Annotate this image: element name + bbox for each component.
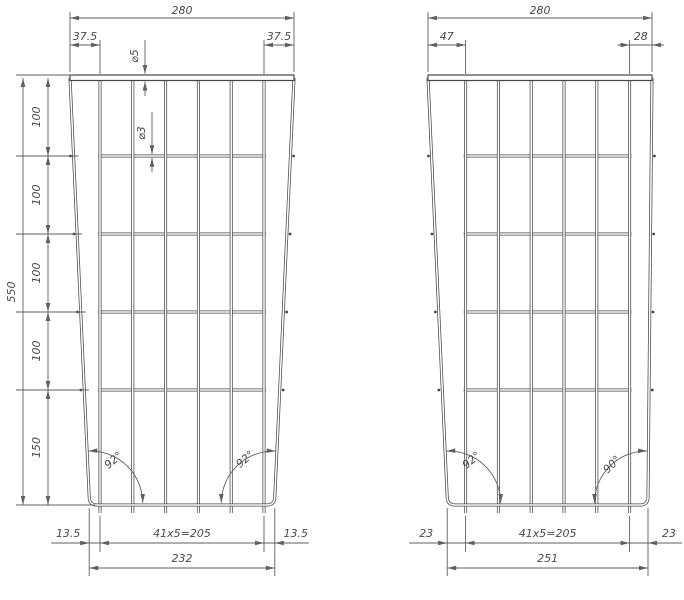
dimension-arrowhead <box>652 43 661 48</box>
dim-row-spacing-label: 100 <box>30 263 43 284</box>
wire-end-dot <box>434 311 437 314</box>
dim-row-spacing-label: 100 <box>30 107 43 128</box>
dimension-arrowhead <box>267 448 276 453</box>
dimension-arrowhead <box>457 43 466 48</box>
dimension-arrowhead <box>46 225 51 234</box>
frame-wire <box>70 78 294 505</box>
dimension-arrowhead <box>446 448 455 453</box>
dimension-arrowhead <box>46 156 51 165</box>
dimension-arrowhead <box>70 43 79 48</box>
dim-total-height-label: 550 <box>5 282 18 303</box>
dimension-arrowhead <box>70 16 79 21</box>
dimension-arrowhead <box>46 496 51 505</box>
dim-bottom-offset-left-label: 13.5 <box>56 527 81 540</box>
dimension-arrowhead <box>639 566 648 571</box>
wire-end-dot <box>437 389 440 392</box>
technical-drawing: 28037.537.513.541x5=20513.523292°92°5501… <box>0 0 684 600</box>
dim-bottom-pitch-label: 41x5=205 <box>153 527 211 540</box>
dimension-arrowhead <box>46 234 51 243</box>
frame-wire-core <box>428 78 652 505</box>
dim-row-spacing-label: 100 <box>30 185 43 206</box>
dimension-arrowhead <box>21 496 26 505</box>
dimension-arrowhead <box>466 541 475 546</box>
dimension-arrowhead <box>255 541 264 546</box>
dimension-arrowhead <box>150 158 155 167</box>
dimension-arrowhead <box>621 43 630 48</box>
frame-wire-core <box>70 78 294 505</box>
angle-arc-right <box>595 451 648 503</box>
dim-row-spacing-label: 150 <box>30 437 43 458</box>
dimension-arrowhead <box>46 381 51 390</box>
dim-bottom-width-label: 251 <box>537 552 558 565</box>
dimension-arrowhead <box>89 566 98 571</box>
dimension-arrowhead <box>285 16 294 21</box>
top-bar <box>428 75 652 81</box>
frame-wire <box>428 78 652 505</box>
wire-end-dot <box>427 155 430 158</box>
dimension-arrowhead <box>46 390 51 399</box>
dimension-arrowhead <box>80 541 89 546</box>
dim-top-offset-left-label: 47 <box>440 30 454 43</box>
wire-end-dot <box>289 233 292 236</box>
dimension-arrowhead <box>438 541 447 546</box>
wire-panel-drawing: 28037.537.513.541x5=20513.523292°92°5501… <box>0 0 684 600</box>
wire-end-dot <box>285 311 288 314</box>
dim-top-width-label: 280 <box>530 4 551 17</box>
dimension-arrowhead <box>88 448 97 453</box>
dimension-arrowhead <box>285 43 294 48</box>
dim-top-offset-right-label: 28 <box>634 30 648 43</box>
dimension-arrowhead <box>150 145 155 154</box>
dim-top-offset-right-label: 37.5 <box>267 30 292 43</box>
dimension-arrowhead <box>100 541 109 546</box>
dimension-arrowhead <box>46 312 51 321</box>
dim-row-spacing-label: 100 <box>30 341 43 362</box>
wire-end-dot <box>651 389 654 392</box>
wire-end-dot <box>652 311 655 314</box>
top-bar <box>70 75 294 81</box>
dim-angle-left-label: 92° <box>102 449 125 471</box>
wire-end-dot <box>282 389 285 392</box>
dim-angle-right-label: 92° <box>233 448 256 470</box>
dimension-arrowhead <box>46 147 51 156</box>
dimension-arrowhead <box>46 303 51 312</box>
wire-end-dot <box>430 233 433 236</box>
dimension-arrowhead <box>643 16 652 21</box>
dim-bottom-width-label: 232 <box>172 552 193 565</box>
dimension-arrowhead <box>275 541 284 546</box>
dim-top-width-label: 280 <box>172 4 193 17</box>
dim-bottom-pitch-label: 41x5=205 <box>519 527 577 540</box>
dimension-arrowhead <box>266 566 275 571</box>
dimension-arrowhead <box>219 494 224 503</box>
dimension-arrowhead <box>91 43 100 48</box>
dimension-arrowhead <box>143 82 148 91</box>
dim-top-wire-diameter-label: ⌀5 <box>128 49 141 63</box>
wire-end-dot <box>652 233 655 236</box>
dimension-arrowhead <box>638 449 647 454</box>
dimension-arrowhead <box>447 566 456 571</box>
dimension-arrowhead <box>143 65 148 74</box>
dim-top-offset-left-label: 37.5 <box>73 30 98 43</box>
dimension-arrowhead <box>264 43 273 48</box>
dimension-arrowhead <box>140 494 145 503</box>
dimension-arrowhead <box>428 16 437 21</box>
wire-end-dot <box>292 155 295 158</box>
dim-bottom-offset-left-label: 23 <box>419 527 433 540</box>
dim-bottom-offset-right-label: 13.5 <box>284 527 309 540</box>
dimension-arrowhead <box>648 541 657 546</box>
dim-bottom-offset-right-label: 23 <box>662 527 676 540</box>
dimension-arrowhead <box>21 78 26 87</box>
wire-end-dot <box>653 155 656 158</box>
dimension-arrowhead <box>621 541 630 546</box>
dim-mesh-wire-diameter-label: ⌀3 <box>135 126 148 140</box>
dimension-arrowhead <box>428 43 437 48</box>
dim-angle-left-label: 92° <box>460 449 483 471</box>
dimension-arrowhead <box>46 78 51 87</box>
